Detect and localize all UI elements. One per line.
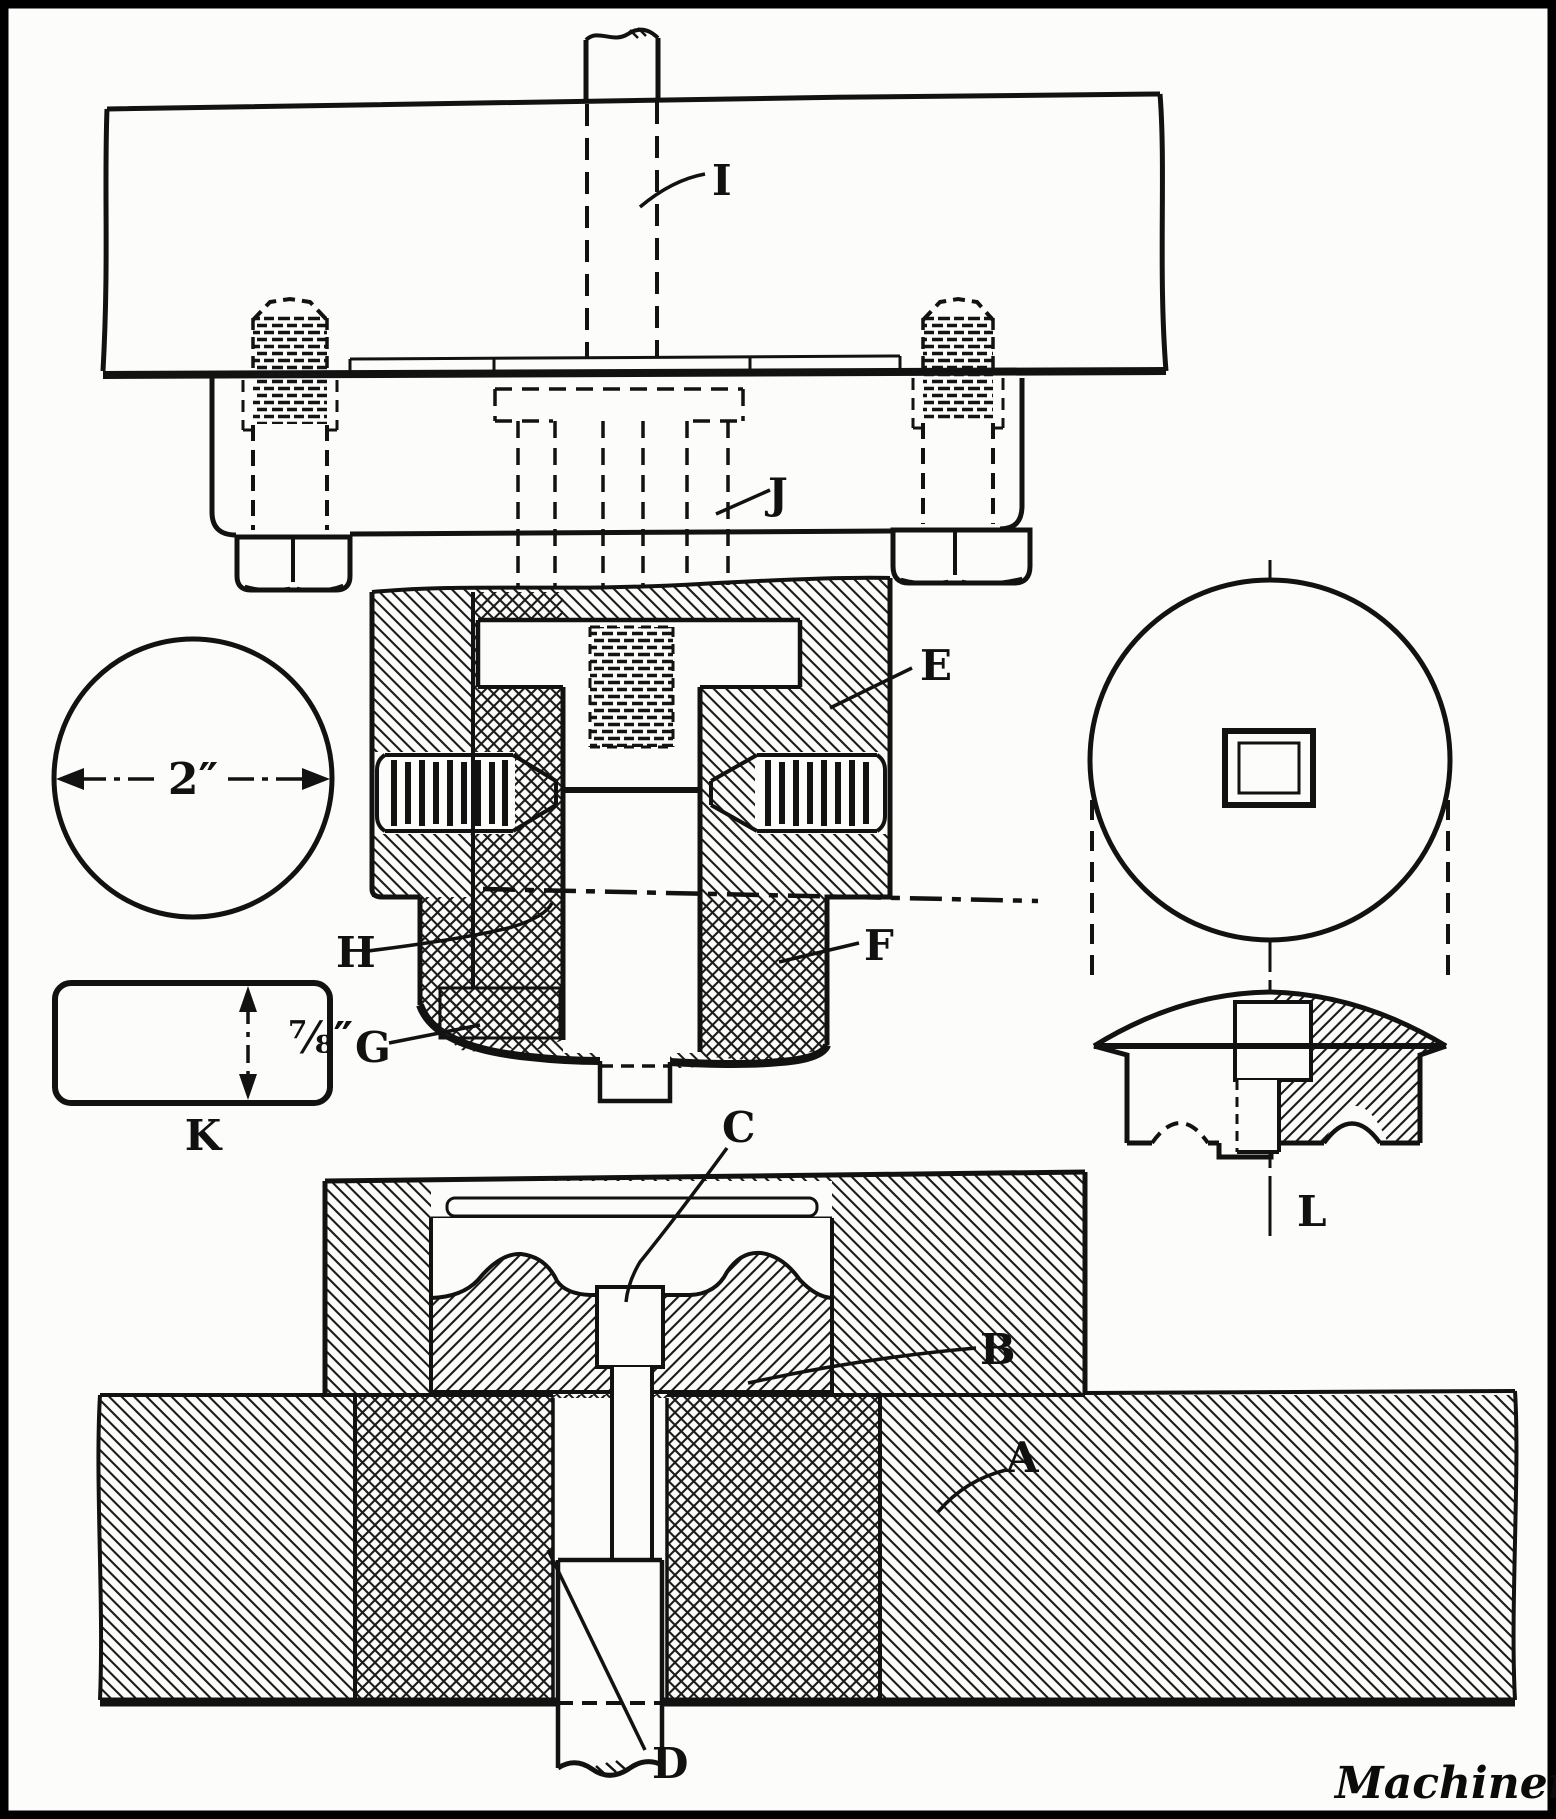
label-H: H xyxy=(336,928,376,977)
center-pin-C xyxy=(597,1287,663,1367)
punch-thread xyxy=(590,627,673,747)
label-B: B xyxy=(980,1325,1016,1374)
press-bed-right xyxy=(880,1395,1515,1700)
label-G: G xyxy=(355,1023,391,1072)
scanned-diagram-page: 2″ ⅞″ K L xyxy=(0,0,1556,1819)
die-assembly xyxy=(98,1172,1516,1775)
label-E: E xyxy=(920,641,952,690)
machinery-logotype: Machinery xyxy=(1333,1758,1556,1809)
blank-disc-view: 2″ xyxy=(54,639,332,917)
label-F: F xyxy=(864,921,894,970)
driver-shaft xyxy=(586,28,658,358)
punch-face-view-L: L xyxy=(1090,560,1450,1238)
left-bolt xyxy=(237,299,350,590)
press-bed-left xyxy=(100,1395,355,1700)
right-bolt xyxy=(893,299,1030,583)
pilot-pin xyxy=(600,1053,670,1101)
punch-die-assembly-drawing: 2″ ⅞″ K L xyxy=(0,0,1556,1819)
label-D: D xyxy=(652,1739,688,1788)
label-K: K xyxy=(185,1111,223,1160)
label-L: L xyxy=(1297,1187,1327,1236)
dim-blank-diameter: 2″ xyxy=(168,754,218,805)
lower-pin-D xyxy=(558,1560,662,1775)
holder-flange-plate xyxy=(212,378,1022,535)
nose-section xyxy=(700,900,827,1062)
blank-side-view-K: ⅞″ K xyxy=(55,983,353,1160)
label-C: C xyxy=(722,1103,755,1152)
keyway-notch xyxy=(1235,1002,1311,1080)
label-I: I xyxy=(712,156,732,205)
label-J: J xyxy=(764,469,788,518)
dim-blank-thickness: ⅞″ xyxy=(288,1013,353,1064)
label-A: A xyxy=(1005,1433,1040,1482)
sheet-blank xyxy=(447,1198,817,1216)
hidden-shank-outline xyxy=(495,389,743,588)
right-bolt-hex-head xyxy=(893,530,1030,583)
